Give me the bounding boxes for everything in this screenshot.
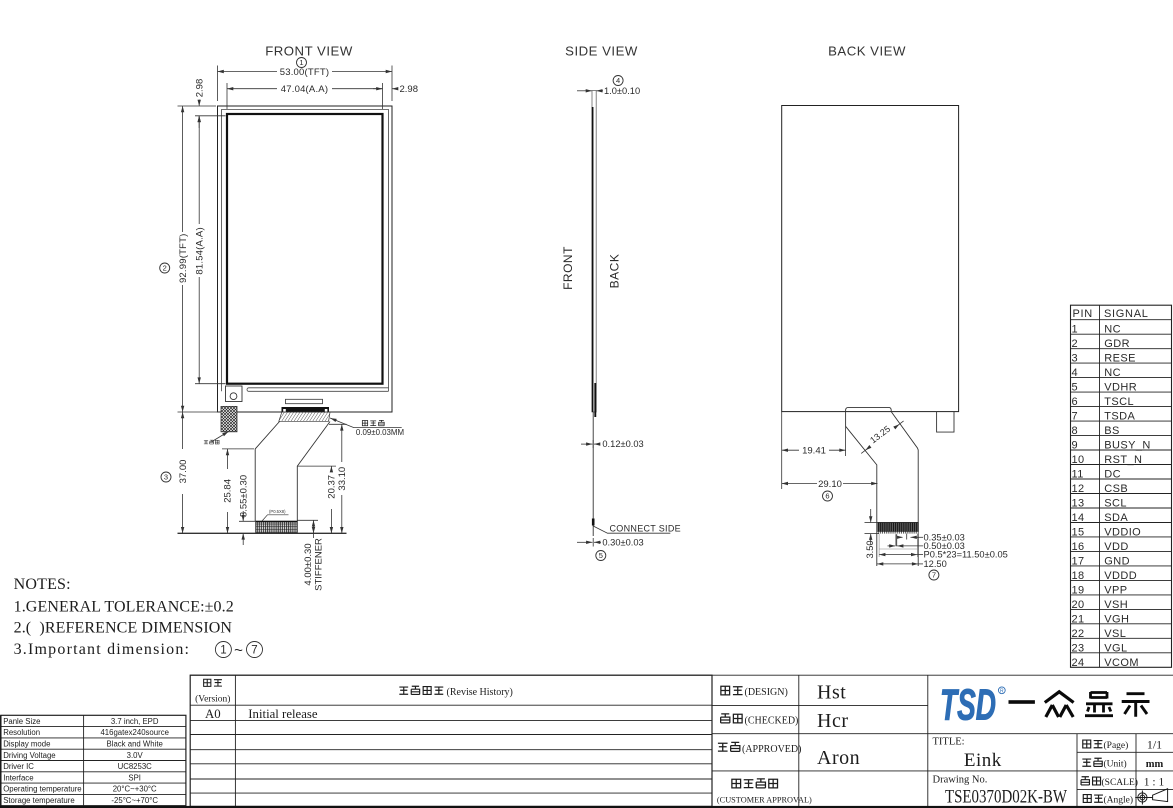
svg-text:VSH: VSH <box>1104 599 1128 611</box>
svg-text:TSD: TSD <box>940 681 996 730</box>
svg-text:2: 2 <box>163 264 167 273</box>
svg-text:21: 21 <box>1072 613 1085 625</box>
svg-text:TSDA: TSDA <box>1104 411 1135 423</box>
svg-text:0.30±0.03: 0.30±0.03 <box>602 538 643 548</box>
svg-text:A0: A0 <box>205 707 221 721</box>
svg-text:1.0±0.10: 1.0±0.10 <box>604 86 640 96</box>
svg-text:Resolution: Resolution <box>3 728 40 737</box>
svg-text:RESE: RESE <box>1104 353 1136 365</box>
svg-text:2.98: 2.98 <box>194 79 205 98</box>
svg-text:3: 3 <box>1072 353 1079 365</box>
svg-text:NC: NC <box>1104 367 1121 379</box>
svg-text:VGH: VGH <box>1104 613 1129 625</box>
svg-text:15: 15 <box>1072 526 1085 538</box>
svg-text:SCL: SCL <box>1104 497 1127 509</box>
svg-text:5: 5 <box>1072 382 1079 394</box>
svg-text:19.41: 19.41 <box>802 445 826 456</box>
svg-text:(Angle): (Angle) <box>1104 795 1134 806</box>
svg-text:SDA: SDA <box>1104 512 1128 524</box>
svg-text:3.0V: 3.0V <box>127 751 144 760</box>
svg-text:Driving Voltage: Driving Voltage <box>3 751 55 760</box>
svg-text:1 : 1: 1 : 1 <box>1144 777 1165 789</box>
svg-text:24: 24 <box>1072 657 1085 669</box>
svg-text:9: 9 <box>1072 440 1079 452</box>
svg-text:Hst: Hst <box>817 682 846 704</box>
svg-text:(Revise History): (Revise History) <box>447 687 513 698</box>
svg-text:3: 3 <box>164 473 168 482</box>
svg-text:47.04(A.A): 47.04(A.A) <box>281 84 328 95</box>
svg-text:GND: GND <box>1104 555 1130 567</box>
svg-text:FRONT VIEW: FRONT VIEW <box>265 44 353 59</box>
svg-text:81.54(A.A): 81.54(A.A) <box>194 227 205 274</box>
svg-text:1: 1 <box>1072 324 1079 336</box>
svg-text:2.( )REFERENCE DIMENSION: 2.( )REFERENCE DIMENSION <box>14 620 233 637</box>
svg-text:(SCALE): (SCALE) <box>1102 777 1138 788</box>
svg-text:DC: DC <box>1104 469 1121 481</box>
svg-text:STIFFENER: STIFFENER <box>314 538 325 591</box>
svg-text:RST_N: RST_N <box>1104 454 1142 466</box>
svg-text:25.84: 25.84 <box>223 479 234 503</box>
svg-text:CONNECT SIDE: CONNECT SIDE <box>610 523 681 533</box>
svg-text:0.09±0.03MM: 0.09±0.03MM <box>356 428 404 437</box>
svg-text:BUSY_N: BUSY_N <box>1104 440 1150 452</box>
svg-text:37.00: 37.00 <box>178 460 189 484</box>
svg-text:VPP: VPP <box>1104 584 1127 596</box>
svg-text:16: 16 <box>1072 541 1085 553</box>
svg-text:12: 12 <box>1072 483 1085 495</box>
svg-text:19: 19 <box>1072 584 1085 596</box>
svg-text:VDHR: VDHR <box>1104 382 1137 394</box>
svg-text:GDR: GDR <box>1104 338 1130 350</box>
svg-text:BACK: BACK <box>608 254 622 289</box>
svg-text:23: 23 <box>1072 642 1085 654</box>
svg-text:53.00(TFT): 53.00(TFT) <box>280 67 330 78</box>
svg-text:12.50: 12.50 <box>924 559 947 569</box>
svg-text:BS: BS <box>1104 425 1119 437</box>
svg-text:3.Important dimension:: 3.Important dimension: <box>14 641 191 658</box>
svg-text:4: 4 <box>1072 367 1079 379</box>
svg-text:3.7 inch, EPD: 3.7 inch, EPD <box>111 717 159 726</box>
svg-text:Panle Size: Panle Size <box>3 717 40 726</box>
svg-text:TSE0370D02K-BW: TSE0370D02K-BW <box>945 787 1067 807</box>
svg-text:92.99(TFT): 92.99(TFT) <box>178 234 189 284</box>
svg-text:1: 1 <box>220 645 226 657</box>
svg-text:(CUSTOMER APPROVAL): (CUSTOMER APPROVAL) <box>717 796 812 805</box>
svg-text:TITLE:: TITLE: <box>933 737 965 748</box>
svg-text:10: 10 <box>1072 454 1085 466</box>
svg-text:0.12±0.03: 0.12±0.03 <box>602 439 643 449</box>
svg-text:mm: mm <box>1146 759 1164 770</box>
svg-text:22: 22 <box>1072 628 1085 640</box>
svg-text:7: 7 <box>932 571 936 580</box>
svg-text:SIDE VIEW: SIDE VIEW <box>565 44 638 59</box>
svg-text:11: 11 <box>1072 469 1084 481</box>
svg-text:Drawing No.: Drawing No. <box>933 775 988 786</box>
svg-text:2.98: 2.98 <box>400 84 419 95</box>
svg-text:13: 13 <box>1072 497 1085 509</box>
svg-text:Initial release: Initial release <box>248 707 318 721</box>
svg-text:6: 6 <box>825 492 829 501</box>
svg-text:-25°C~+70°C: -25°C~+70°C <box>111 796 158 805</box>
svg-text:7: 7 <box>1072 411 1079 423</box>
svg-text:SPI: SPI <box>128 773 141 782</box>
svg-text:FRONT: FRONT <box>561 246 575 290</box>
svg-text:R: R <box>1000 688 1004 694</box>
svg-text:7: 7 <box>251 645 257 657</box>
svg-text:Interface: Interface <box>3 773 33 782</box>
svg-text:1: 1 <box>299 58 303 67</box>
svg-text:20.37: 20.37 <box>327 475 338 499</box>
svg-text:Display mode: Display mode <box>3 740 50 749</box>
svg-text:4: 4 <box>616 76 620 85</box>
svg-text:Operating temperature: Operating temperature <box>3 785 81 794</box>
svg-text:(P0.5X8): (P0.5X8) <box>269 509 286 514</box>
svg-text:BACK VIEW: BACK VIEW <box>828 44 906 59</box>
svg-text:3.50: 3.50 <box>865 540 875 558</box>
svg-text:33.10: 33.10 <box>337 467 348 491</box>
svg-text:(Page): (Page) <box>1104 740 1129 751</box>
svg-text:Aron: Aron <box>817 747 860 769</box>
svg-text:Storage temperature: Storage temperature <box>3 796 75 805</box>
svg-text:NOTES:: NOTES: <box>14 576 71 593</box>
svg-text:29.10: 29.10 <box>818 479 842 490</box>
svg-text:VCOM: VCOM <box>1104 657 1139 669</box>
svg-text:18: 18 <box>1072 570 1085 582</box>
svg-text:Eink: Eink <box>964 750 1002 771</box>
svg-text:SIGNAL: SIGNAL <box>1104 308 1149 320</box>
svg-text:(CHECKED): (CHECKED) <box>745 716 799 727</box>
svg-text:(APPROVED): (APPROVED) <box>742 744 801 755</box>
svg-text:TSCL: TSCL <box>1104 396 1134 408</box>
svg-text:Black and White: Black and White <box>107 740 163 749</box>
svg-text:20°C~+30°C: 20°C~+30°C <box>113 785 157 794</box>
svg-text:8: 8 <box>1072 425 1079 437</box>
svg-text:2: 2 <box>1072 338 1079 350</box>
svg-text:416gatex240source: 416gatex240source <box>100 728 169 737</box>
svg-text:5: 5 <box>599 551 603 560</box>
svg-text:1/1: 1/1 <box>1147 738 1162 752</box>
svg-text:14: 14 <box>1072 512 1085 524</box>
svg-text:(DESIGN): (DESIGN) <box>745 687 788 698</box>
svg-text:Hcr: Hcr <box>817 710 848 732</box>
svg-text:1.GENERAL TOLERANCE:±0.2: 1.GENERAL TOLERANCE:±0.2 <box>14 598 234 615</box>
svg-text:VDDIO: VDDIO <box>1104 526 1141 538</box>
svg-text:(Version): (Version) <box>195 694 230 705</box>
svg-text:6: 6 <box>1072 396 1079 408</box>
svg-text:VSL: VSL <box>1104 628 1126 640</box>
svg-text:NC: NC <box>1104 324 1121 336</box>
svg-text:~: ~ <box>234 642 243 659</box>
svg-text:UC8253C: UC8253C <box>118 762 153 771</box>
svg-text:(Unit): (Unit) <box>1104 759 1127 770</box>
svg-text:VGL: VGL <box>1104 642 1127 654</box>
svg-text:17: 17 <box>1072 555 1085 567</box>
svg-text:4.00±0.30: 4.00±0.30 <box>303 543 314 585</box>
svg-text:3.55±0.30: 3.55±0.30 <box>238 475 249 517</box>
svg-text:VDDD: VDDD <box>1104 570 1137 582</box>
svg-text:20: 20 <box>1072 599 1085 611</box>
svg-text:Driver IC: Driver IC <box>3 762 34 771</box>
svg-text:PIN: PIN <box>1073 308 1093 320</box>
svg-text:CSB: CSB <box>1104 483 1128 495</box>
svg-text:VDD: VDD <box>1104 541 1128 553</box>
